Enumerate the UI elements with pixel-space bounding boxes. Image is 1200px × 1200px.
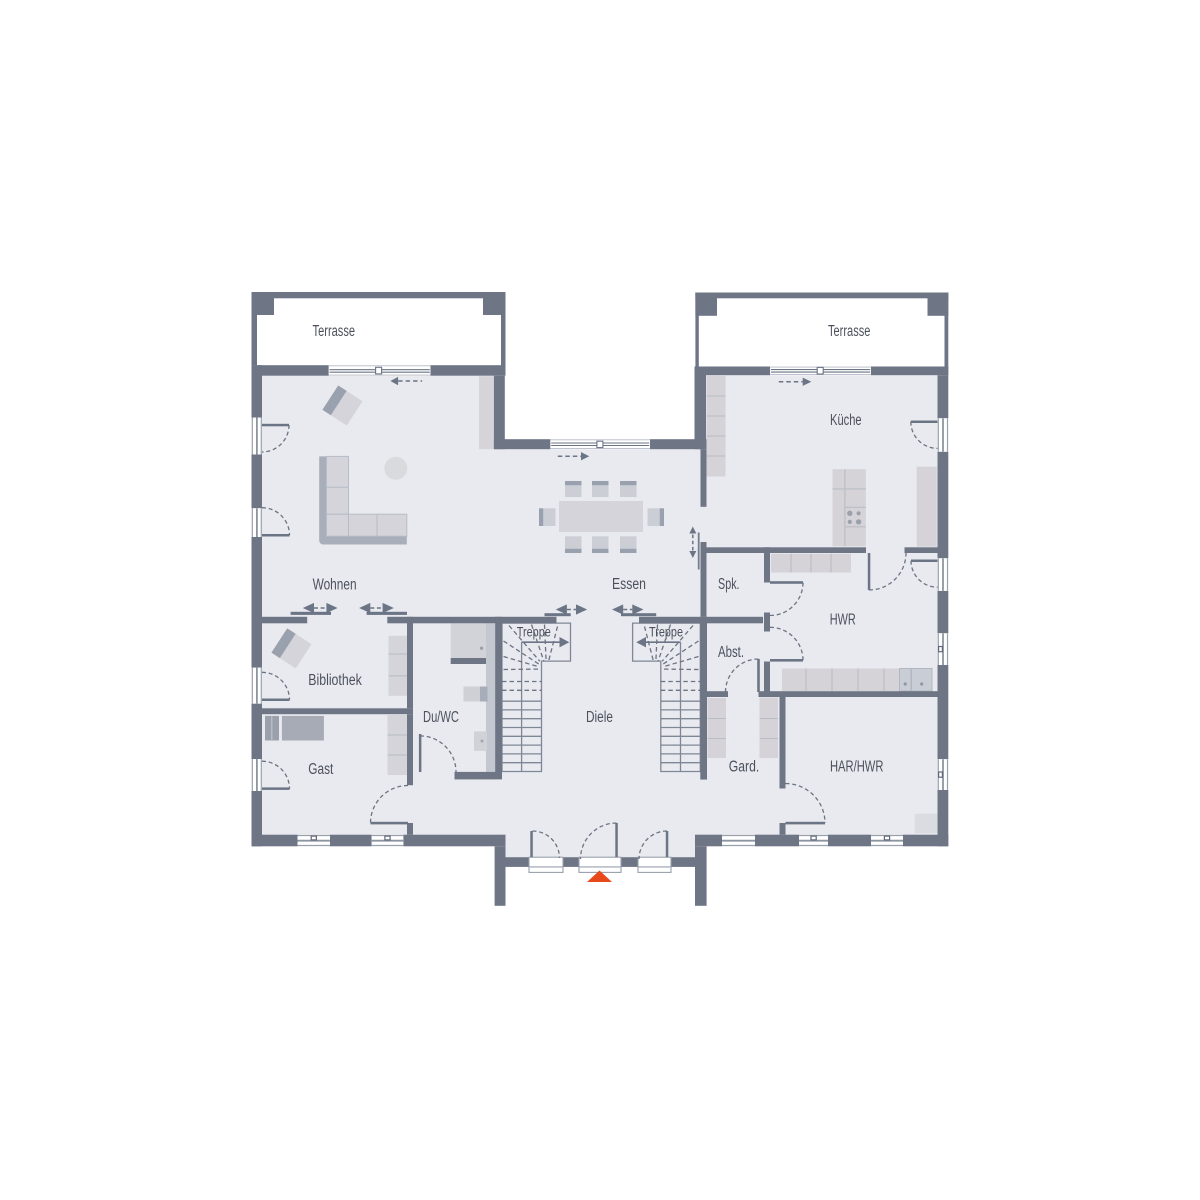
svg-text:Spk.: Spk. — [718, 576, 740, 593]
svg-text:Treppe: Treppe — [517, 625, 551, 640]
svg-text:HWR: HWR — [830, 612, 856, 629]
svg-text:Küche: Küche — [830, 412, 862, 429]
svg-text:Essen: Essen — [612, 576, 646, 593]
svg-text:Terrasse: Terrasse — [828, 323, 871, 340]
svg-text:Wohnen: Wohnen — [313, 577, 357, 594]
svg-text:Gast: Gast — [308, 761, 334, 778]
svg-text:Du/WC: Du/WC — [423, 709, 459, 726]
svg-text:Bibliothek: Bibliothek — [308, 672, 362, 689]
svg-text:Gard.: Gard. — [729, 759, 760, 776]
svg-text:Terrasse: Terrasse — [313, 323, 356, 340]
svg-text:Treppe: Treppe — [649, 625, 683, 640]
svg-text:Diele: Diele — [586, 709, 613, 726]
svg-text:Abst.: Abst. — [718, 644, 744, 661]
svg-text:HAR/HWR: HAR/HWR — [830, 759, 884, 776]
